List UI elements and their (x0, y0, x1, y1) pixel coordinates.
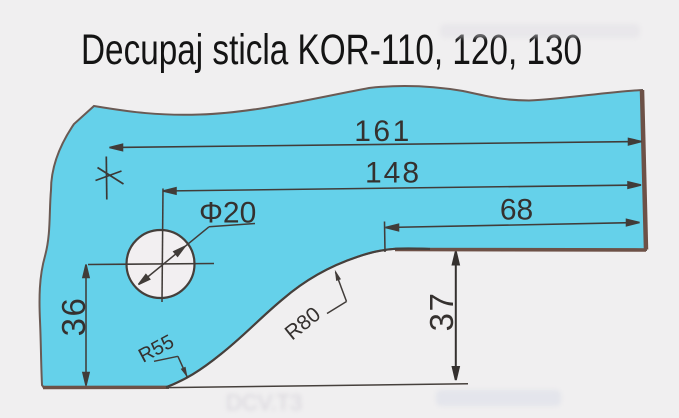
svg-text:R80: R80 (281, 303, 325, 345)
svg-text:37: 37 (423, 292, 460, 332)
svg-text:36: 36 (55, 297, 92, 337)
svg-text:68: 68 (500, 194, 533, 227)
svg-text:Φ20: Φ20 (199, 197, 256, 230)
svg-text:148: 148 (365, 157, 421, 190)
svg-text:161: 161 (354, 115, 412, 148)
